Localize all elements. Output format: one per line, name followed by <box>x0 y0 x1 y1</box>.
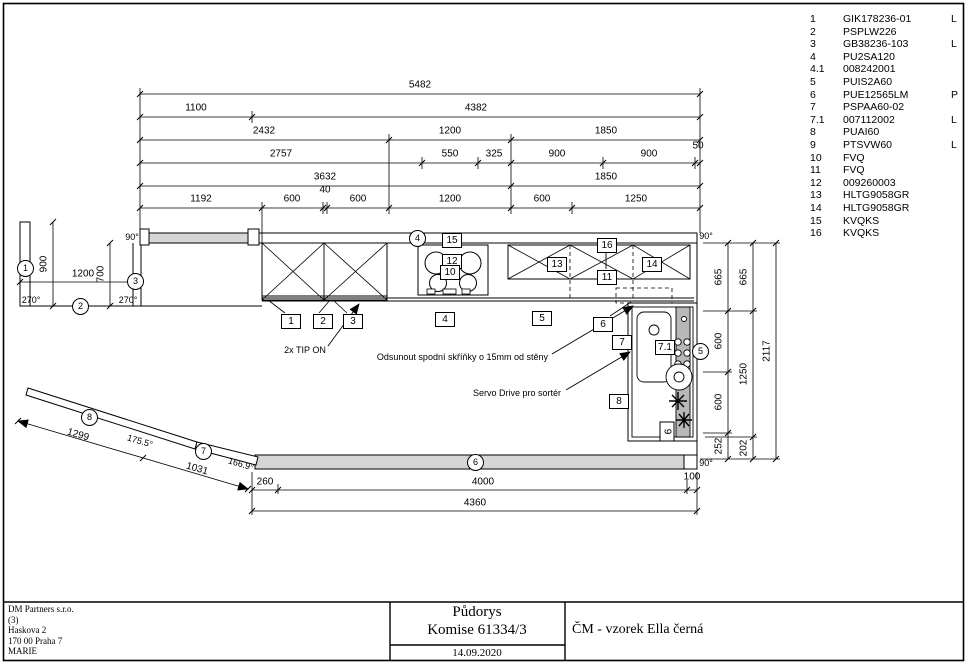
dim-label: 2117 <box>762 340 773 362</box>
item-marker-box: 7.1 <box>655 340 675 355</box>
annotation-move-cabinets: Odsunout spodní skříňky o 15mm od stěny <box>377 352 548 362</box>
dim-label: 4000 <box>472 477 494 488</box>
parts-list: 1GIK178236-01L 2PSPLW226 3GB38236-103L 4… <box>810 13 963 240</box>
item-marker-box: 7 <box>612 335 632 350</box>
company-contact: MARIE <box>8 646 74 657</box>
item-marker-box: 2 <box>313 314 333 329</box>
parts-row: 3GB38236-103L <box>810 38 963 51</box>
dim-label: 1850 <box>595 126 617 137</box>
parts-row: 14HLTG9058GR <box>810 202 963 215</box>
dim-label: 600 <box>714 333 725 350</box>
item-marker-box: 1 <box>281 314 301 329</box>
dim-label: 1200 <box>439 126 461 137</box>
angle-label: 90° <box>699 231 713 241</box>
wall-marker-circle: 7 <box>195 443 212 460</box>
dim-label: 665 <box>739 269 750 286</box>
dim-label: 325 <box>486 149 503 160</box>
wall-marker-circle: 4 <box>409 230 426 247</box>
parts-row: 12009260003 <box>810 177 963 190</box>
company-city: 170 00 Praha 7 <box>8 636 74 647</box>
wall-marker-circle: 8 <box>81 409 98 426</box>
company-name: DM Partners s.r.o. <box>8 604 74 615</box>
parts-row: 9PTSVW60L <box>810 139 963 152</box>
drawing-page: 1GIK178236-01L 2PSPLW226 3GB38236-103L 4… <box>0 0 967 664</box>
dim-label: 900 <box>39 256 50 273</box>
parts-row: 4PU2SA120 <box>810 51 963 64</box>
wall-marker-circle: 2 <box>72 298 89 315</box>
item-marker-box: 16 <box>597 238 617 253</box>
dim-label: 1850 <box>595 172 617 183</box>
parts-row: 7.1007112002L <box>810 114 963 127</box>
dim-label: 3632 <box>314 172 336 183</box>
parts-row: 13HLTG9058GR <box>810 189 963 202</box>
parts-row: 8PUAI60 <box>810 126 963 139</box>
commission-number: Komise 61334/3 <box>427 622 527 639</box>
item-marker-box: 15 <box>442 233 462 248</box>
dim-label: 550 <box>442 149 459 160</box>
parts-row: 16KVQKS <box>810 227 963 240</box>
dim-label: 1100 <box>185 103 207 114</box>
parts-row: 2PSPLW226 <box>810 26 963 39</box>
dim-label: 600 <box>350 194 367 205</box>
dim-label: 5482 <box>409 80 431 91</box>
parts-row: 10FVQ <box>810 152 963 165</box>
parts-row: 11FVQ <box>810 164 963 177</box>
dim-label: 2757 <box>270 149 292 160</box>
item-marker-box: 8 <box>609 394 629 409</box>
dim-label: 1200 <box>72 269 94 280</box>
parts-row: 7PSPAA60-02 <box>810 101 963 114</box>
parts-row: 15KVQKS <box>810 215 963 228</box>
dim-label: 252 <box>714 438 725 455</box>
dim-label: 1192 <box>190 194 212 205</box>
dim-label: 1200 <box>439 194 461 205</box>
annotation-servo-drive: Servo Drive pro sortér <box>473 388 561 398</box>
dim-label: 665 <box>714 269 725 286</box>
parts-row: 1GIK178236-01L <box>810 13 963 26</box>
project-name: ČM - vzorek Ella černá <box>572 622 703 638</box>
dim-label: 100 <box>684 472 701 483</box>
item-marker-box: 13 <box>547 257 567 272</box>
dim-label: 2432 <box>253 126 275 137</box>
item-marker-box: 14 <box>642 257 662 272</box>
item-marker-box: 4 <box>435 312 455 327</box>
company-line: (3) <box>8 615 74 626</box>
dim-label: 700 <box>96 266 107 283</box>
drawing-date: 14.09.2020 <box>452 647 502 659</box>
wall-marker-circle: 3 <box>127 273 144 290</box>
parts-row: 4.1008242001 <box>810 63 963 76</box>
dim-label: 1250 <box>739 363 750 385</box>
dim-label: 4360 <box>464 498 486 509</box>
item-marker-box: 10 <box>440 265 460 280</box>
dim-label: 900 <box>641 149 658 160</box>
dim-label: 260 <box>257 477 274 488</box>
dim-label: 600 <box>534 194 551 205</box>
angle-label: 270° <box>22 295 41 305</box>
dim-label: 900 <box>549 149 566 160</box>
parts-row: 5PUIS2A60 <box>810 76 963 89</box>
dim-label: 50 <box>692 141 703 152</box>
dim-label: 40 <box>319 185 330 196</box>
dim-label: 4382 <box>465 103 487 114</box>
item-marker-box: 6 <box>593 317 613 332</box>
wall-marker-circle: 6 <box>467 454 484 471</box>
dim-label: 600 <box>714 394 725 411</box>
item-marker-box: 9 <box>660 422 675 442</box>
drawing-title: Půdorys <box>452 604 501 621</box>
wall-marker-circle: 5 <box>692 343 709 360</box>
dim-label: 202 <box>739 440 750 457</box>
dim-label: 1250 <box>625 194 647 205</box>
item-marker-box: 11 <box>597 270 617 285</box>
company-street: Haskova 2 <box>8 625 74 636</box>
item-marker-box: 3 <box>343 314 363 329</box>
item-marker-box: 5 <box>532 311 552 326</box>
annotation-tip-on: 2x TIP ON <box>284 345 326 355</box>
parts-row: 6PUE12565LMP <box>810 89 963 102</box>
dim-label: 600 <box>284 194 301 205</box>
angle-label: 90° <box>699 458 713 468</box>
angle-label: 270° <box>119 295 138 305</box>
company-block: DM Partners s.r.o. (3) Haskova 2 170 00 … <box>8 604 74 657</box>
wall-marker-circle: 1 <box>17 260 34 277</box>
angle-label: 90° <box>125 232 139 242</box>
